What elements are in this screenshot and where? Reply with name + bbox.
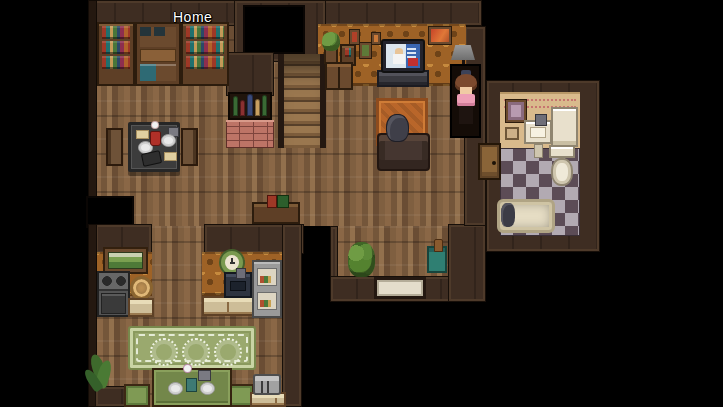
table-pot — [198, 370, 211, 381]
book-row — [102, 56, 130, 69]
table-paper — [136, 130, 149, 139]
wine-rack[interactable] — [228, 92, 272, 120]
tv[interactable] — [381, 39, 425, 73]
hutch-drawer — [140, 49, 176, 62]
sink-bowl — [230, 281, 246, 291]
sink-basin — [530, 127, 546, 138]
wine-bottle — [247, 94, 252, 116]
corner-plant — [84, 350, 114, 407]
stairwell-opening — [243, 5, 305, 54]
book-row — [345, 48, 351, 57]
bin-bottle — [434, 239, 443, 252]
book-row — [186, 26, 224, 39]
kitchen-counter[interactable] — [202, 296, 258, 316]
painting-canvas — [108, 252, 143, 269]
book-row — [102, 41, 130, 54]
kitchen-table[interactable] — [152, 368, 232, 407]
pantry-shelf — [257, 268, 277, 286]
tv-screen — [386, 44, 420, 68]
kitchen-sink[interactable] — [224, 272, 252, 298]
table-plate — [168, 382, 183, 395]
green-rug — [128, 326, 256, 370]
light-switch[interactable] — [505, 127, 519, 140]
player-character — [454, 70, 478, 128]
map-name-label: Home — [173, 9, 212, 25]
basket[interactable] — [130, 276, 153, 300]
flower-vase — [150, 131, 161, 146]
table-flower — [184, 365, 191, 372]
picture-frame — [371, 32, 381, 45]
pantry-items — [260, 276, 274, 283]
table-pan — [141, 150, 162, 167]
hutch-lower-doors — [140, 64, 176, 81]
oven-door — [101, 293, 126, 314]
wall-art — [428, 26, 452, 45]
pantry-shelf — [257, 292, 277, 310]
dining-table[interactable] — [128, 122, 180, 172]
figure-at-bathtub — [501, 203, 515, 227]
landscape-painting — [103, 247, 148, 274]
entry-doormat[interactable] — [374, 277, 426, 299]
wine-bottle — [233, 96, 238, 116]
sink-pedestal — [534, 144, 543, 158]
tv-person-body — [393, 54, 405, 64]
toaster[interactable] — [253, 374, 281, 395]
stove[interactable] — [97, 271, 130, 317]
bookshelf[interactable] — [181, 22, 229, 86]
tv-text-lines — [407, 48, 416, 50]
kitchen-faucet — [236, 268, 246, 279]
bathroom-picture-art — [508, 102, 524, 120]
picture-art — [374, 35, 378, 42]
toilet[interactable] — [551, 158, 573, 186]
bookshelf[interactable] — [97, 22, 135, 86]
entry-shrub — [348, 242, 375, 277]
table-cup — [186, 378, 197, 392]
hutch-glass-doors — [140, 27, 176, 47]
shelf-book-green — [277, 195, 289, 208]
potted-plant — [322, 32, 340, 51]
player-face — [460, 87, 472, 94]
rug-medallion — [214, 338, 242, 366]
game-viewport[interactable]: Home — [0, 0, 723, 407]
green-bin[interactable] — [427, 246, 447, 273]
picture-art — [352, 32, 357, 42]
wine-bottle — [255, 99, 260, 116]
sink-faucet — [535, 114, 547, 126]
player-dress — [457, 94, 475, 106]
rug-medallion — [182, 338, 210, 366]
door-knob — [492, 161, 496, 165]
kitchen-counter[interactable] — [128, 298, 154, 317]
npc-head — [386, 114, 409, 142]
bathroom-cabinet[interactable] — [551, 107, 578, 147]
table-plate — [200, 382, 215, 395]
npc-sitting — [386, 114, 407, 140]
stove-top — [99, 273, 128, 291]
vase-flower — [152, 122, 158, 128]
bathroom-sink[interactable] — [524, 120, 552, 144]
wine-bottle — [262, 95, 267, 116]
wall-art-canvas — [431, 29, 449, 42]
pantry-fridge[interactable] — [252, 260, 282, 318]
china-hutch[interactable] — [135, 22, 181, 86]
dining-chair[interactable] — [181, 128, 198, 166]
hearth-wall — [226, 52, 274, 96]
brick-hearth — [226, 120, 274, 148]
book-row — [102, 26, 130, 39]
picture-art — [362, 45, 369, 56]
kitchen-chair[interactable] — [124, 384, 150, 407]
left-wall-edge — [88, 0, 97, 226]
kitchen-right-wall — [282, 224, 302, 407]
pantry-items — [260, 300, 274, 307]
low-bookshelf[interactable] — [252, 202, 300, 224]
table-plate — [161, 134, 176, 147]
book-row — [186, 41, 224, 54]
hall-right-wall — [448, 224, 486, 302]
dining-chair[interactable] — [106, 128, 123, 166]
toilet-tank — [549, 145, 575, 158]
staircase[interactable] — [278, 54, 326, 148]
bathroom-door[interactable] — [478, 143, 501, 180]
book-row — [186, 56, 224, 69]
shelf-book-red — [267, 195, 277, 208]
wine-bottle — [240, 100, 245, 116]
tv-screen-banner — [408, 58, 418, 66]
rug-medallion — [150, 338, 178, 366]
player-lower-shadow — [459, 106, 473, 124]
table-paper — [164, 152, 177, 161]
small-cabinet[interactable] — [325, 62, 353, 90]
